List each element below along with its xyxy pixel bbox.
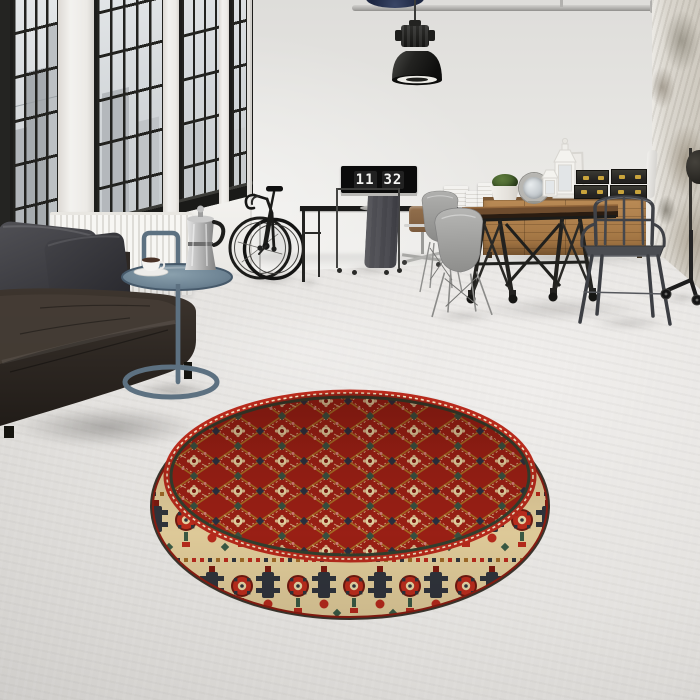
brass-latch — [635, 175, 641, 179]
rack-caster — [337, 268, 342, 273]
flip-clock-minutes: 32 — [382, 171, 405, 189]
moka-pot — [185, 206, 223, 271]
lamp-lug-right — [428, 30, 435, 41]
rug-shading — [151, 393, 549, 619]
storage-trunk — [576, 170, 609, 184]
storage-trunk — [611, 169, 647, 184]
wall-pillar — [163, 0, 179, 222]
tray-side-table — [118, 200, 240, 412]
lamp-cap — [409, 20, 421, 26]
dining-set — [410, 188, 680, 333]
stool-caster-base — [656, 276, 700, 306]
brass-latch — [598, 176, 604, 180]
window-2-muntins — [97, 0, 166, 220]
wall-pillar — [58, 0, 94, 248]
wall-pillar — [219, 0, 229, 208]
shell-chair-front — [428, 207, 492, 317]
desk-crossbar — [302, 232, 321, 234]
rack-caster — [352, 270, 357, 275]
garment-drape — [364, 196, 400, 268]
pendant-lamp-shade — [388, 44, 446, 88]
stool-pole — [689, 230, 693, 282]
window-1-muntins — [13, 0, 61, 241]
loft-room-photo: 11 32 — [0, 0, 700, 700]
lamp-lug-left — [395, 30, 402, 41]
table-base — [125, 367, 217, 397]
desk-leg — [318, 211, 320, 277]
pipe-hanger — [560, 0, 563, 7]
flip-clock-hours: 11 — [354, 171, 377, 189]
desk-leg — [302, 211, 305, 282]
brass-latch — [619, 175, 625, 179]
sofa-leg — [4, 426, 14, 438]
window-3-muntins — [182, 0, 222, 199]
brass-latch — [583, 176, 589, 180]
office-chair-caster — [402, 260, 407, 265]
rack-caster — [397, 268, 402, 273]
rack-caster — [384, 270, 389, 275]
table-handle — [144, 233, 178, 382]
